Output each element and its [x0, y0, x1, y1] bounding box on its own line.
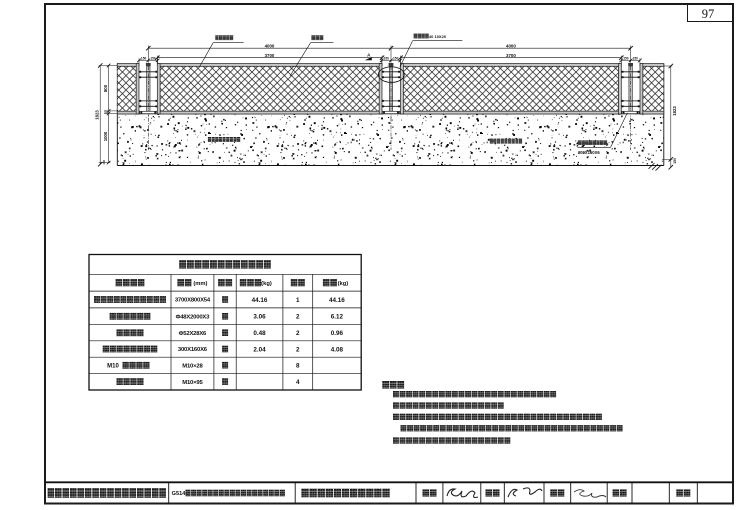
svg-text:6.12: 6.12 [331, 314, 344, 321]
svg-text:150: 150 [393, 56, 399, 60]
svg-text:150: 150 [384, 56, 390, 60]
svg-text:0.48: 0.48 [253, 330, 266, 337]
svg-text:1823: 1823 [672, 106, 677, 116]
svg-text:150: 150 [141, 56, 147, 60]
svg-text:Φ52X28X6: Φ52X28X6 [179, 331, 207, 337]
svg-text:2.04: 2.04 [253, 346, 266, 353]
svg-text:44.16: 44.16 [329, 297, 345, 304]
svg-text:40 10X20: 40 10X20 [429, 34, 447, 39]
svg-text:4000: 4000 [506, 43, 516, 48]
svg-text:150: 150 [150, 56, 156, 60]
svg-text:4000: 4000 [265, 43, 275, 48]
svg-text:150: 150 [623, 56, 629, 60]
svg-text:1: 1 [296, 297, 300, 304]
svg-text:3700: 3700 [265, 53, 275, 58]
svg-text:3700X800X54: 3700X800X54 [175, 298, 211, 304]
svg-text:300X160X6: 300X160X6 [578, 150, 601, 155]
svg-text:150: 150 [633, 56, 639, 60]
svg-text:M10: M10 [107, 363, 119, 369]
svg-text:1000: 1000 [103, 131, 108, 141]
svg-text:300X160X6: 300X160X6 [178, 347, 208, 353]
svg-text:2: 2 [296, 346, 300, 353]
svg-text:97: 97 [702, 7, 715, 21]
svg-text:Φ48X2000X3: Φ48X2000X3 [176, 315, 211, 321]
svg-text:1823: 1823 [95, 110, 100, 120]
svg-text:0.96: 0.96 [331, 330, 344, 337]
svg-text:2: 2 [296, 330, 300, 337]
svg-text:4: 4 [296, 379, 300, 386]
svg-text:3700: 3700 [506, 53, 516, 58]
svg-text:G514: G514 [172, 491, 187, 497]
svg-text:4.08: 4.08 [331, 346, 344, 353]
svg-text:800: 800 [103, 84, 108, 92]
svg-text:150: 150 [673, 158, 677, 164]
svg-text:(mm): (mm) [193, 281, 207, 287]
svg-text:3.06: 3.06 [253, 314, 266, 321]
svg-text:M10×28: M10×28 [182, 363, 203, 369]
svg-text:(kg): (kg) [338, 281, 349, 287]
svg-text:44.16: 44.16 [252, 297, 268, 304]
svg-text:(kg): (kg) [261, 281, 272, 287]
svg-text:M10×95: M10×95 [182, 380, 203, 386]
svg-text:8: 8 [296, 363, 300, 370]
svg-text:2: 2 [296, 314, 300, 321]
svg-text:150: 150 [102, 159, 106, 164]
